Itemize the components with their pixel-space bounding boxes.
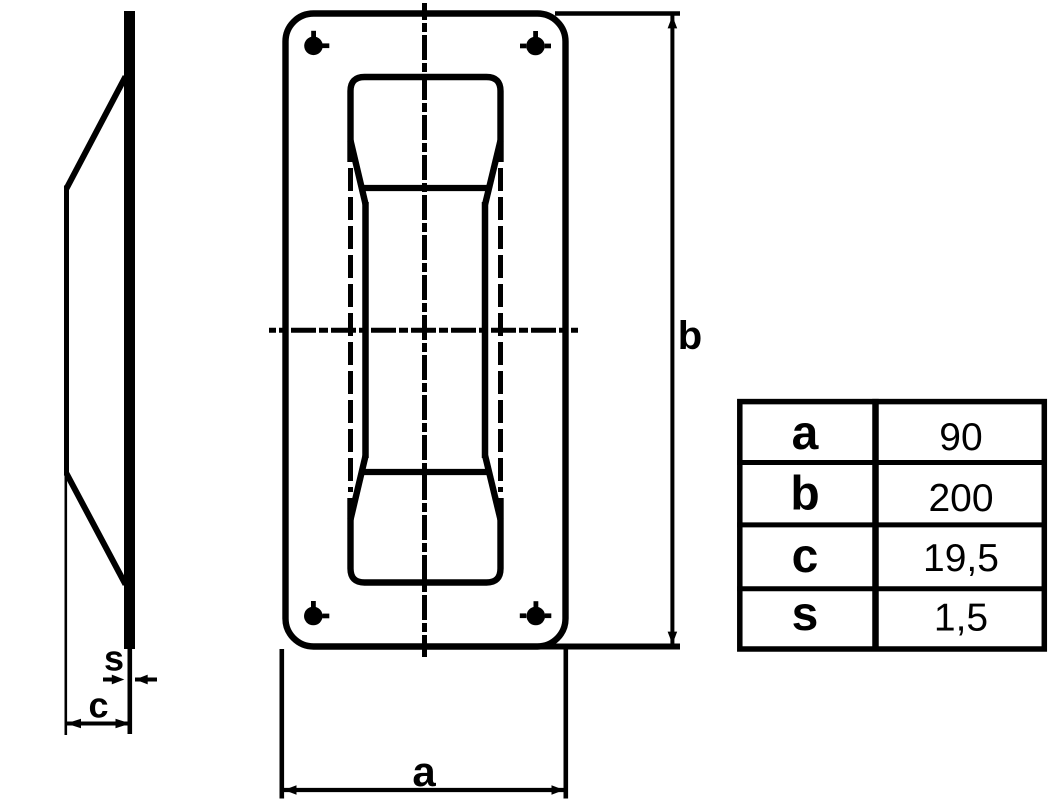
svg-text:90: 90 — [939, 416, 982, 459]
svg-text:s: s — [104, 638, 124, 679]
svg-text:a: a — [792, 407, 819, 460]
svg-text:19,5: 19,5 — [923, 537, 999, 580]
svg-text:b: b — [790, 468, 819, 521]
svg-text:s: s — [792, 588, 819, 641]
svg-text:1,5: 1,5 — [934, 597, 988, 640]
svg-text:200: 200 — [928, 477, 993, 520]
svg-text:a: a — [412, 748, 436, 795]
svg-text:c: c — [88, 685, 108, 726]
svg-text:c: c — [792, 530, 819, 583]
svg-text:b: b — [678, 314, 702, 358]
